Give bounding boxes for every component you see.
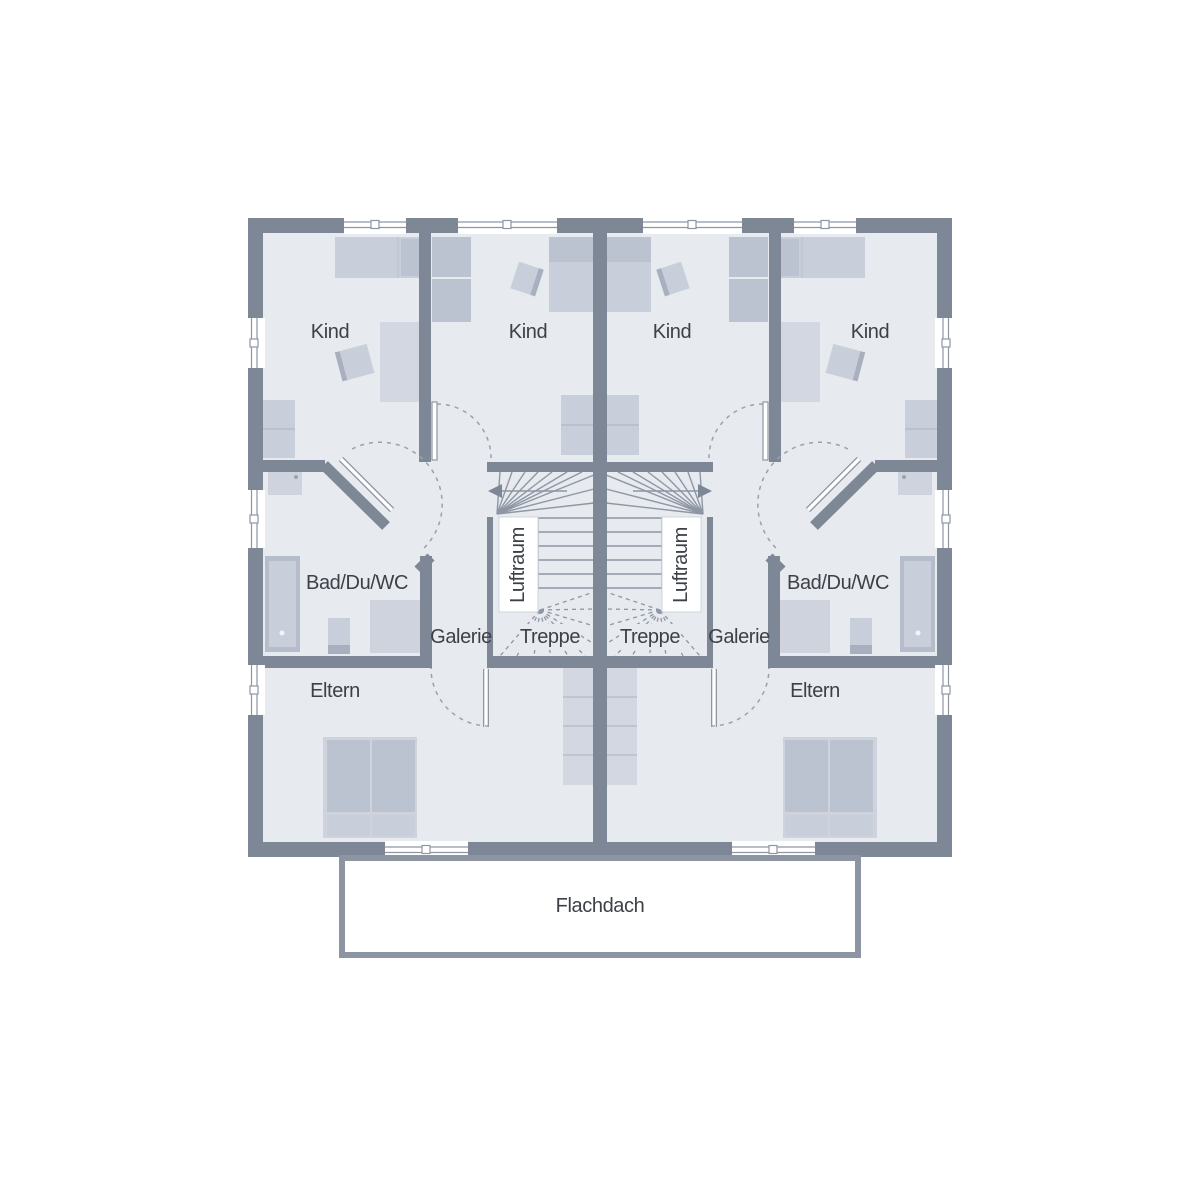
dresser	[561, 395, 593, 455]
window	[935, 318, 955, 368]
party-wall	[593, 233, 607, 842]
bed	[335, 237, 425, 278]
room-label-kind-4: Kind	[851, 321, 889, 343]
window	[245, 665, 265, 715]
room-label-kind-1: Kind	[311, 321, 349, 343]
dresser	[263, 400, 295, 458]
shelf	[563, 668, 593, 785]
double-bed	[323, 737, 417, 838]
window	[245, 490, 265, 548]
room-label-eltern-right: Eltern	[790, 680, 840, 702]
room-label-luftraum-right: Luftraum	[670, 527, 692, 603]
wall-stair-top-left	[487, 462, 594, 472]
window	[344, 216, 406, 234]
window	[458, 216, 557, 234]
bathtub	[900, 556, 935, 652]
wall-bad-top-right	[875, 460, 937, 472]
room-label-luftraum-left: Luftraum	[507, 527, 529, 603]
window	[935, 665, 955, 715]
door-leaf	[763, 402, 768, 460]
floor-plan-drawing: Kind Kind Kind Kind Bad/Du/WC Bad/Du/WC …	[0, 0, 1200, 1200]
room-label-kind-2: Kind	[509, 321, 547, 343]
bathtub	[265, 556, 300, 652]
room-label-bad-right: Bad/Du/WC	[787, 572, 889, 594]
room-label-eltern-left: Eltern	[310, 680, 360, 702]
room-label-galerie-left: Galerie	[430, 626, 492, 648]
wall-bad-top-left	[263, 460, 325, 472]
window	[935, 490, 955, 548]
shelf	[607, 668, 637, 785]
window	[643, 216, 742, 234]
wall-kind-divider-left	[419, 233, 431, 462]
washbasin	[898, 470, 932, 495]
bed	[549, 237, 593, 312]
desk	[380, 322, 420, 402]
room-label-treppe-left: Treppe	[520, 626, 581, 648]
toilet	[850, 618, 872, 654]
wardrobe	[729, 237, 768, 322]
wall-eltern-top-right-a	[606, 656, 713, 668]
floor-plan-canvas: Kind Kind Kind Kind Bad/Du/WC Bad/Du/WC …	[0, 0, 1200, 1200]
flachdach-label: Flachdach	[556, 895, 645, 917]
door-leaf	[432, 402, 437, 460]
outer-wall-bottom	[248, 842, 952, 857]
dresser	[607, 395, 639, 455]
desk	[780, 322, 820, 402]
room-label-treppe-right: Treppe	[620, 626, 681, 648]
bed	[607, 237, 651, 312]
room-label-galerie-right: Galerie	[708, 626, 770, 648]
wall-stair-top-right	[606, 462, 713, 472]
window	[245, 318, 265, 368]
room-label-bad-left: Bad/Du/WC	[306, 572, 408, 594]
shower	[777, 600, 830, 653]
dresser	[905, 400, 937, 458]
wardrobe	[432, 237, 471, 322]
shower	[370, 600, 423, 653]
room-label-kind-3: Kind	[653, 321, 691, 343]
wall-eltern-top-left-a	[263, 656, 425, 668]
bed	[775, 237, 865, 278]
toilet	[328, 618, 350, 654]
wall-kind-divider-right	[769, 233, 781, 462]
window	[794, 216, 856, 234]
wall-eltern-top-left-b	[487, 656, 594, 668]
washbasin	[268, 470, 302, 495]
double-bed	[783, 737, 877, 838]
wall-eltern-top-right-b	[775, 656, 937, 668]
